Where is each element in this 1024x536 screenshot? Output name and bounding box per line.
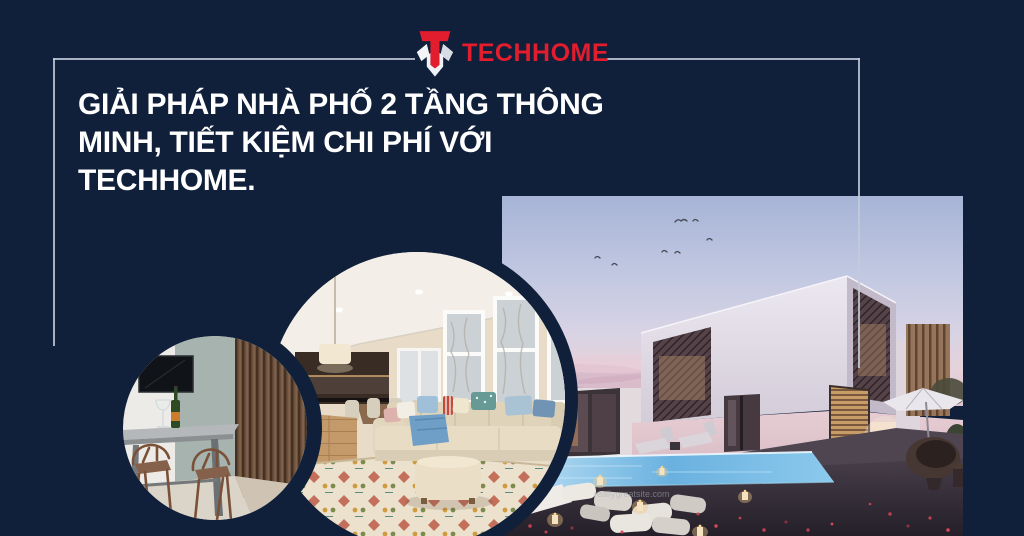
frame-line-right	[858, 58, 860, 368]
frame-line-left	[53, 58, 55, 346]
logo-wordmark: TECHHOME	[462, 39, 609, 68]
sectional-sofa	[373, 392, 565, 464]
frame-line-top-right	[607, 58, 860, 60]
techhome-logo-icon	[415, 28, 455, 78]
headline: GIẢI PHÁP NHÀ PHỐ 2 TẦNG THÔNG MINH, TIẾ…	[78, 86, 638, 200]
frame-line-top-left	[53, 58, 415, 60]
logo: TECHHOME	[415, 28, 609, 78]
watermark-site-text: reallygreatsite.com	[594, 489, 670, 499]
banner-canvas: TECHHOME GIẢI PHÁP NHÀ PHỐ 2 TẦNG THÔNG …	[0, 0, 1024, 536]
wall-tv	[139, 356, 193, 392]
ottoman	[405, 456, 493, 510]
wood-slat-wall	[235, 336, 307, 498]
dining-photo-circle	[108, 321, 322, 535]
